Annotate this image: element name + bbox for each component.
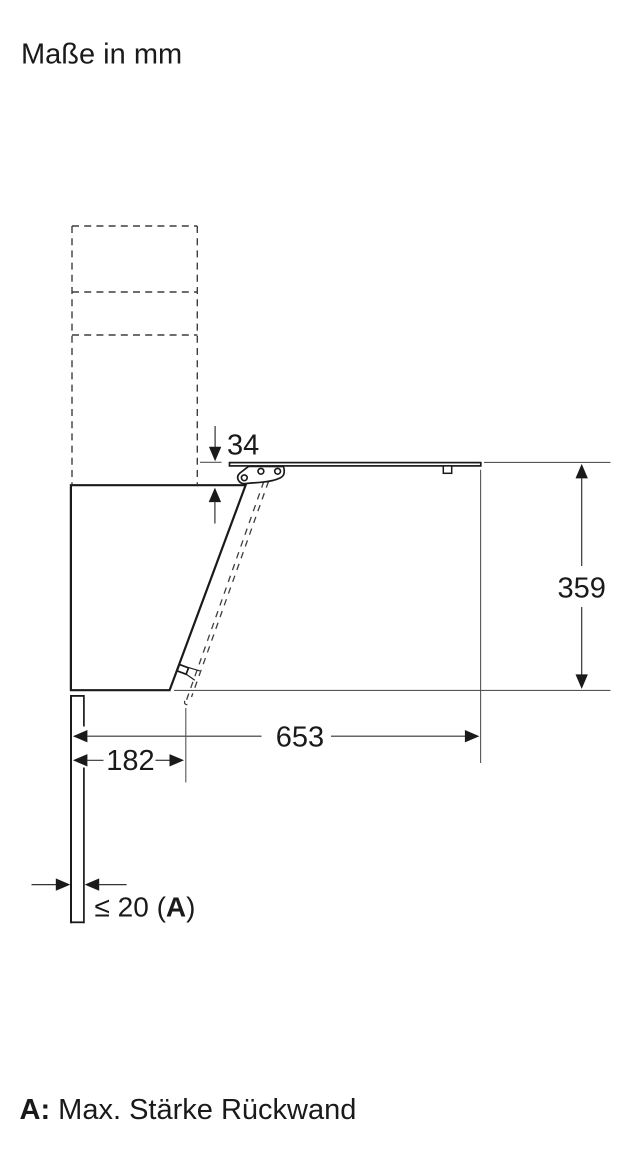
svg-text:34: 34 — [227, 430, 259, 462]
svg-text:653: 653 — [276, 722, 324, 754]
svg-text:182: 182 — [106, 745, 154, 777]
svg-text:359: 359 — [558, 573, 606, 605]
svg-text:≤ 20 (A): ≤ 20 (A) — [95, 892, 196, 923]
svg-text:Maße in mm: Maße in mm — [21, 39, 182, 71]
svg-text:A: Max. Stärke Rückwand: A: Max. Stärke Rückwand — [20, 1094, 357, 1126]
